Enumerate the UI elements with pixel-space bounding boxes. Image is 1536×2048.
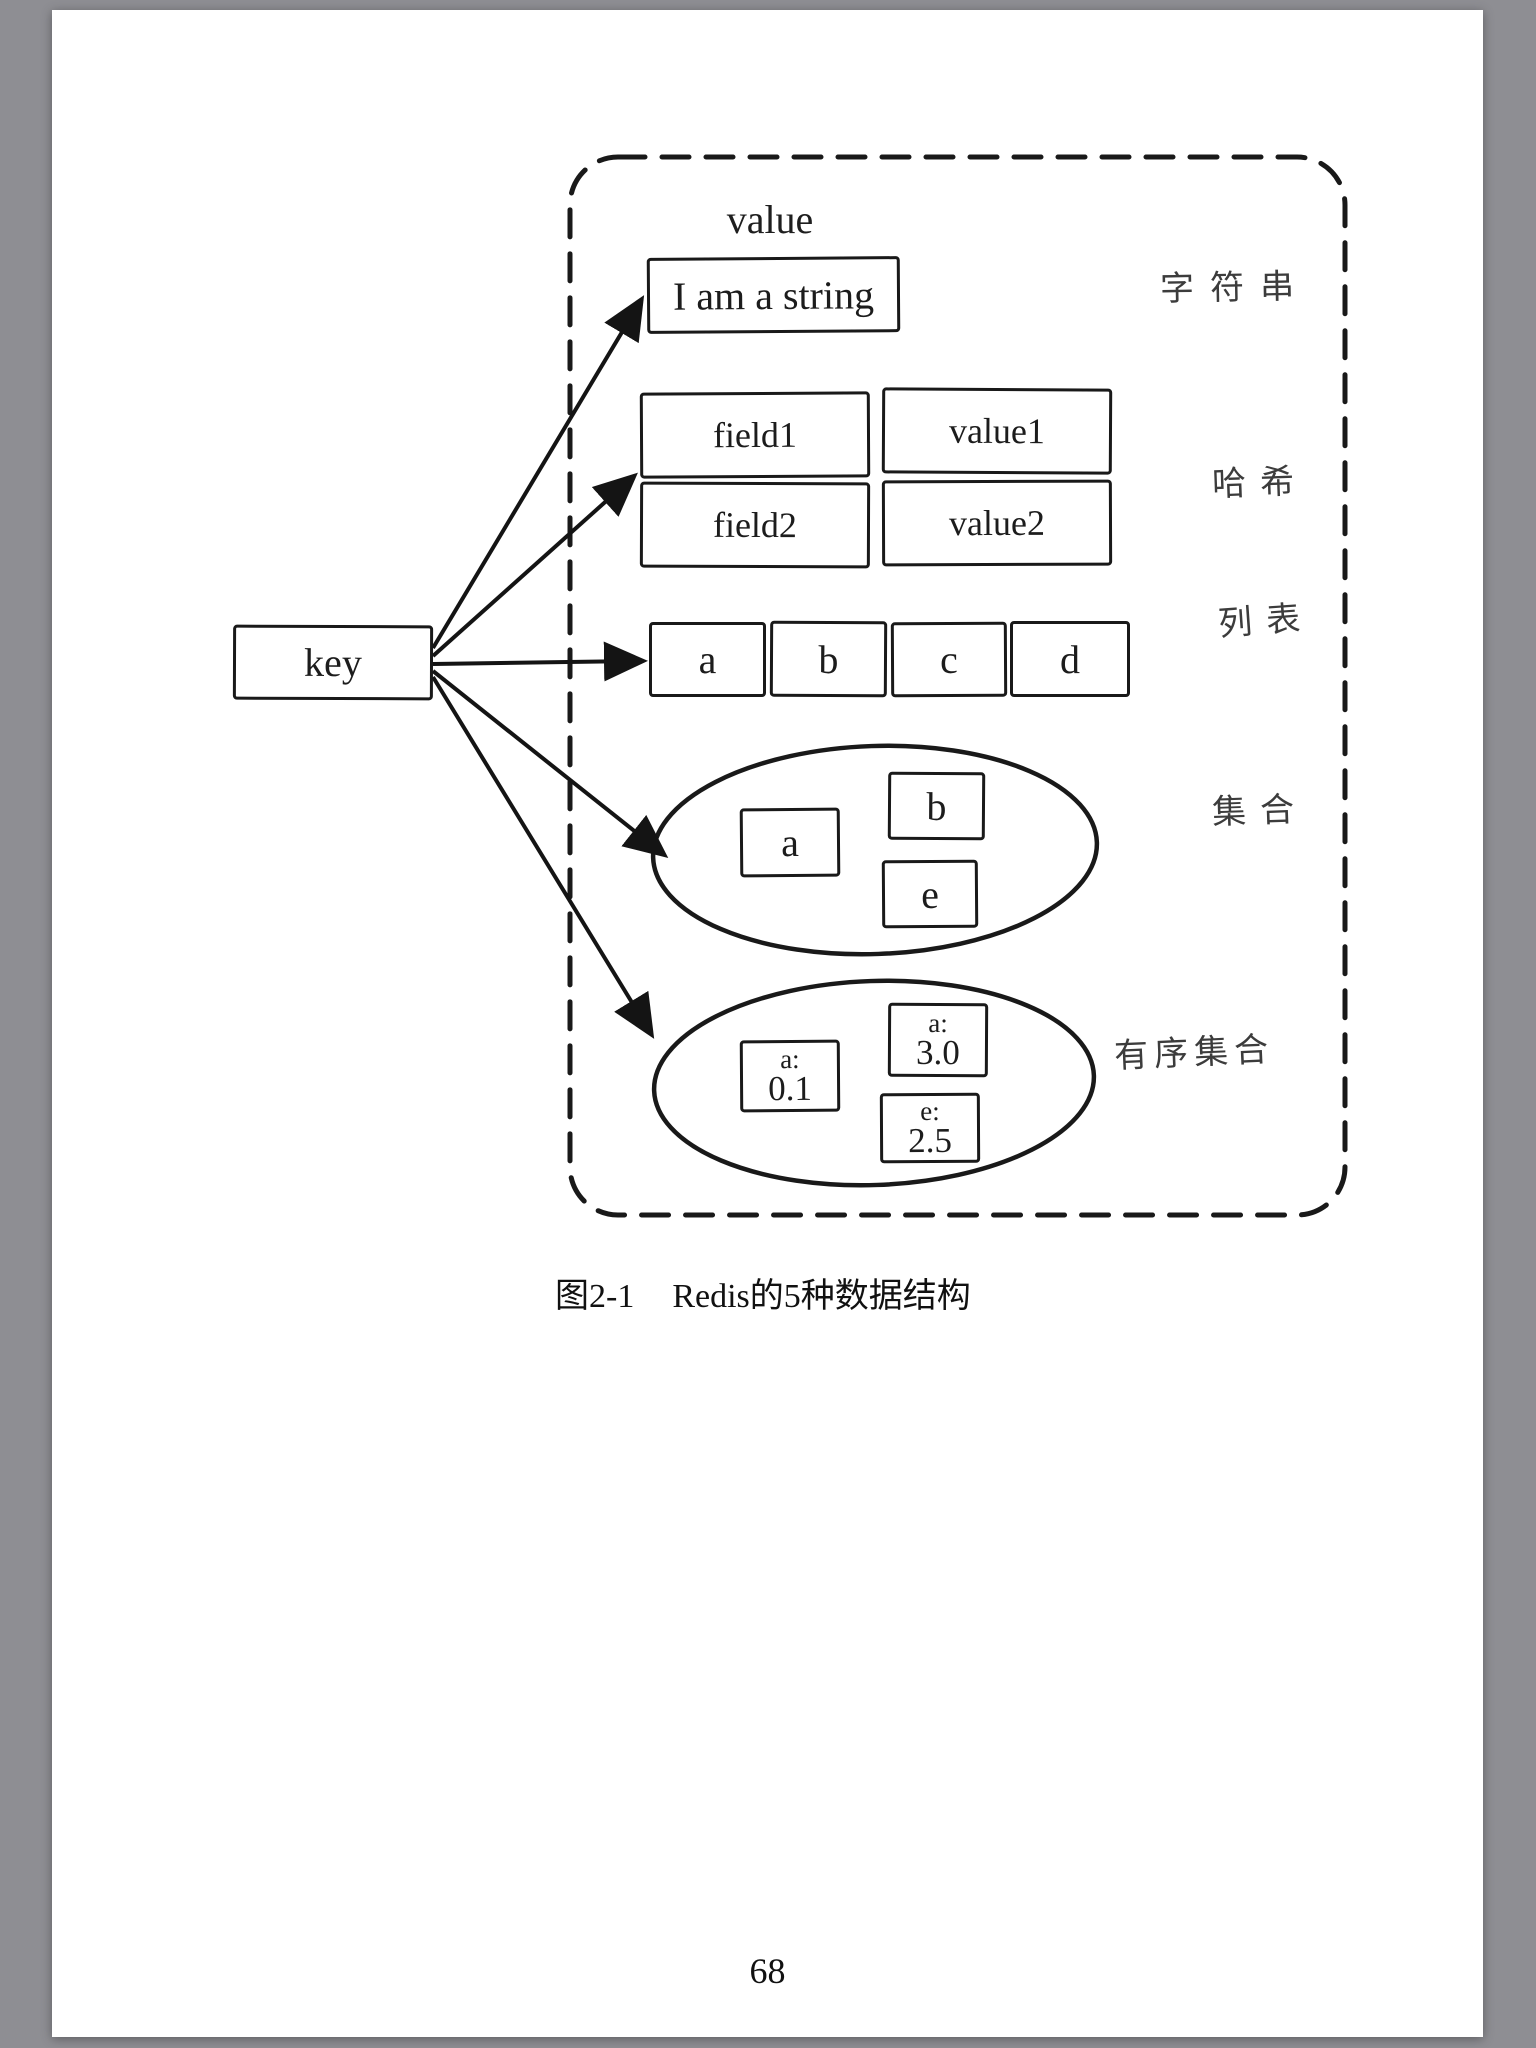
arrow-key-to-hash xyxy=(433,478,632,656)
sorted-set-ellipse xyxy=(651,973,1098,1192)
list-item-c: c xyxy=(891,622,1007,698)
page-number: 68 xyxy=(52,1950,1483,1992)
hash-value2-cell: value2 xyxy=(882,480,1112,567)
label-list-type: 列表 xyxy=(1216,590,1315,646)
arrow-key-to-set xyxy=(433,671,662,853)
sorted-set-member-3: e: 2.5 xyxy=(880,1093,980,1164)
arrow-key-to-string xyxy=(433,302,640,648)
list-item-b: b xyxy=(770,621,887,698)
hash-value1-cell: value1 xyxy=(882,387,1112,474)
label-string-type: 字符串 xyxy=(1160,259,1311,311)
sorted-set-member-3-score: 2.5 xyxy=(908,1124,952,1157)
label-sorted-set-type: 有序集合 xyxy=(1113,1022,1275,1078)
arrow-key-to-sorted-set xyxy=(433,677,650,1032)
key-box: key xyxy=(233,625,433,701)
value-column-header: value xyxy=(700,196,840,243)
list-item-d: d xyxy=(1010,621,1130,697)
list-item-a: a xyxy=(649,622,766,697)
hash-field1-cell: field1 xyxy=(640,391,870,478)
sorted-set-member-1: a: 0.1 xyxy=(740,1040,841,1113)
set-member-a: a xyxy=(740,808,841,878)
book-page: value I am a string 字符串 field1 value1 fi… xyxy=(52,10,1483,2037)
sorted-set-member-1-score: 0.1 xyxy=(768,1072,812,1106)
figure-caption-label: 图2-1 xyxy=(555,1278,634,1315)
hash-field2-cell: field2 xyxy=(640,482,870,569)
sorted-set-member-2-score: 3.0 xyxy=(916,1036,960,1069)
sorted-set-member-2: a: 3.0 xyxy=(888,1003,988,1078)
set-member-e: e xyxy=(882,860,978,929)
arrow-key-to-list xyxy=(433,661,640,664)
label-set-type: 集合 xyxy=(1211,781,1309,833)
set-ellipse xyxy=(650,738,1101,961)
label-hash-type: 哈希 xyxy=(1211,453,1309,505)
string-value-box: I am a string xyxy=(647,256,901,334)
set-member-b: b xyxy=(888,772,985,841)
figure-caption-title: Redis的5种数据结构 xyxy=(672,1278,970,1315)
figure-caption: 图2-1Redis的5种数据结构 xyxy=(555,1268,971,1317)
